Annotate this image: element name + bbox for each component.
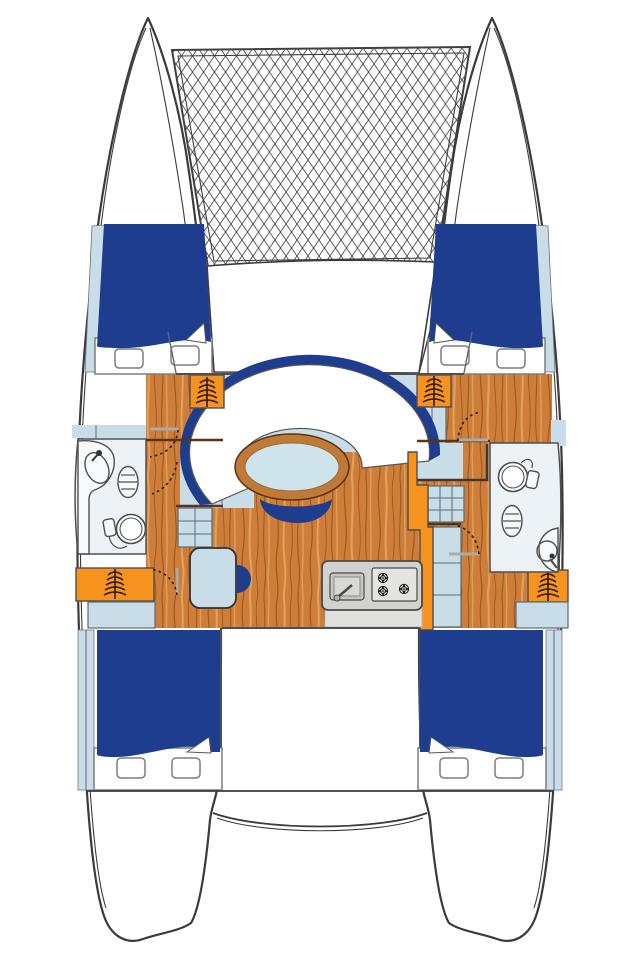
boat-floor-plan — [0, 0, 640, 960]
saloon-table — [235, 434, 349, 500]
port-locker — [88, 602, 155, 628]
starboard-locker-grid — [428, 486, 464, 522]
port-forward-berth — [85, 224, 212, 374]
galley-sink — [330, 573, 364, 601]
port-aft-berth — [78, 630, 222, 790]
starboard-head — [490, 420, 566, 572]
aft-deck — [213, 813, 427, 827]
shower-grate-icon — [502, 506, 522, 537]
starboard-aft-berth — [418, 630, 562, 790]
starboard-forward-berth — [428, 224, 555, 374]
floor-plan-canvas — [0, 0, 640, 960]
trampoline-net — [172, 47, 470, 267]
port-locker-grid — [178, 508, 212, 547]
port-head — [72, 425, 146, 554]
shower-grate-icon — [118, 467, 138, 498]
starboard-locker — [516, 602, 568, 628]
galley-stove — [372, 568, 417, 601]
